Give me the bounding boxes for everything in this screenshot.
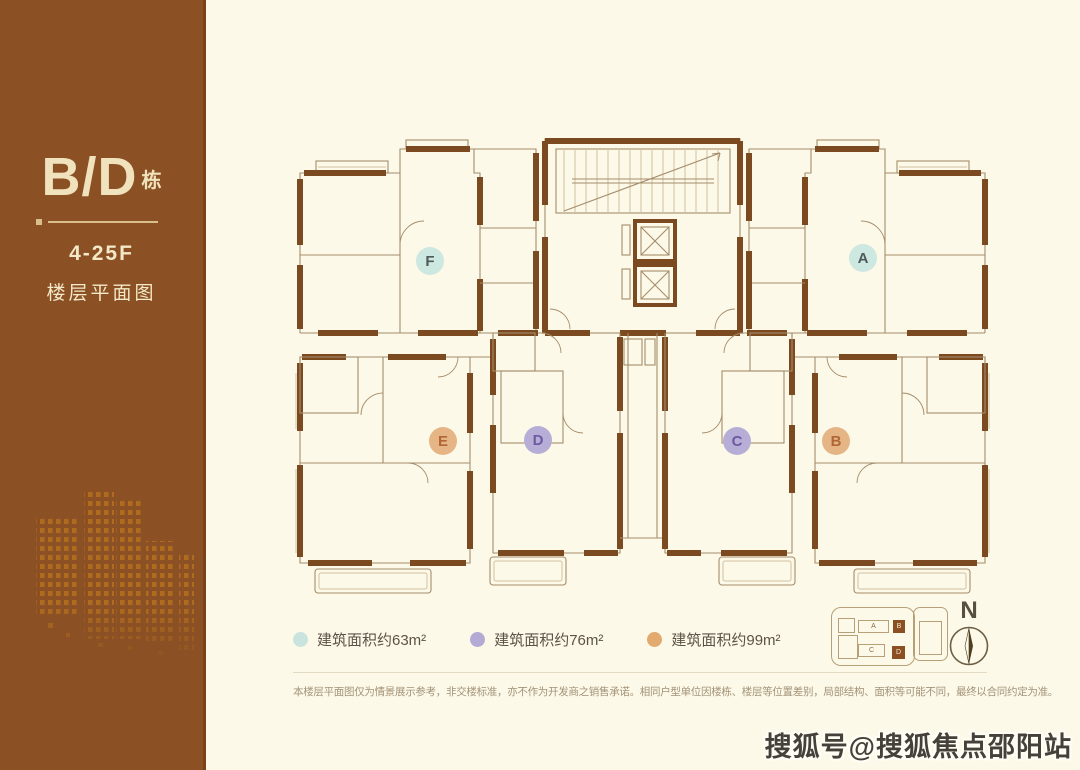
unit-label-E: E [429,427,457,455]
city-skyline-illustration [0,483,203,668]
building-label: B/D [42,147,138,207]
legend-label: 建筑面积约76m² [494,629,603,650]
floorplan-page: B/D栋 4-25F 楼层平面图 [0,0,1080,770]
sidebar: B/D栋 4-25F 楼层平面图 [0,0,206,770]
watermark-text: 搜狐号@搜狐焦点邵阳站 [765,725,1072,764]
legend-dot-icon [470,632,485,647]
legend-dot-icon [647,632,662,647]
keyplan-unit-B: B [893,620,905,633]
compass-north-label: N [950,597,988,625]
site-key-plan: ABCD [831,607,915,666]
adjacent-building-outline [913,607,948,661]
building-suffix: 栋 [142,170,162,192]
unit-B-walls [815,357,989,593]
unit-D-walls [490,333,620,585]
area-legend: 建筑面积约63m²建筑面积约76m²建筑面积约99m² [293,629,781,650]
floor-plan-drawing [288,133,998,598]
unit-label-F: F [416,247,444,275]
legend-dot-icon [293,632,308,647]
legend-item-0: 建筑面积约63m² [293,629,426,650]
keyplan-unit-A: A [858,620,889,633]
unit-label-B: B [822,427,850,455]
sidebar-subtitle: 楼层平面图 [0,278,203,305]
keyplan-unit-D: D [892,646,905,659]
legend-item-2: 建筑面积约99m² [647,629,780,650]
compass-icon [949,624,989,668]
central-shaft [620,333,665,538]
title-divider [0,218,203,226]
building-title: B/D栋 [0,150,203,204]
unit-C-walls [665,333,795,585]
keyplan-block [838,635,858,659]
divider-line [48,221,158,223]
legend-item-1: 建筑面积约76m² [470,629,603,650]
unit-label-C: C [723,427,751,455]
unit-label-A: A [849,244,877,272]
unit-E-walls [296,357,470,593]
floor-range: 4-25F [0,242,203,266]
adjacent-building-inner [919,621,942,655]
keyplan-unit-C: C [858,644,885,657]
legend-label: 建筑面积约99m² [671,629,780,650]
core-block [545,139,740,333]
keyplan-block [838,618,855,633]
unit-F-walls [300,140,545,333]
unit-label-D: D [524,426,552,454]
unit-A-walls [740,140,985,333]
disclaimer-text: 本楼层平面图仅为情景展示参考，非交楼标准，亦不作为开发商之销售承诺。相同户型单位… [293,684,1003,699]
legend-label: 建筑面积约63m² [317,629,426,650]
divider-square [36,219,42,225]
footer-divider [293,672,987,673]
